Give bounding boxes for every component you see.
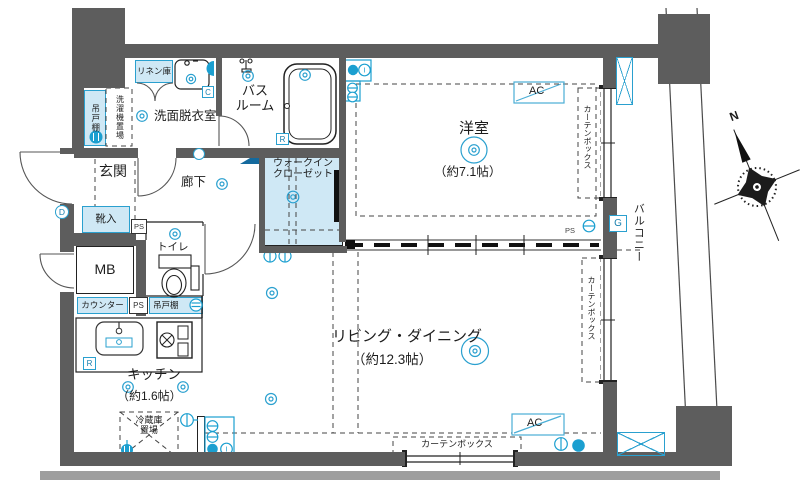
shower-icon	[240, 59, 252, 72]
wall	[74, 148, 138, 158]
wall	[603, 382, 617, 452]
outlet-pair-bottom-right	[555, 438, 585, 452]
wall	[74, 233, 136, 246]
c-badge: C	[202, 86, 214, 98]
window-living	[599, 255, 617, 384]
r-badge-bath: R	[276, 133, 289, 145]
window-west-room	[599, 85, 617, 201]
outlet-cluster-west-room	[345, 60, 371, 102]
room-label-hanging-cupboard-washroom: 吊戸棚	[84, 92, 106, 144]
wall	[60, 148, 74, 154]
r-badge-kitchen: R	[83, 357, 96, 370]
bathroom-line2: ルーム	[236, 99, 275, 114]
ps-label-west-room: PS	[565, 227, 575, 235]
wic-line1: ウォークイン	[273, 158, 333, 169]
room-size-living: （約12.3帖）	[352, 352, 432, 367]
room-label-entrance: 玄関	[99, 164, 127, 180]
room-label-balcony: バルコニー	[632, 203, 644, 263]
room-label-hanging-cupboard-kitchen: 吊戸棚	[153, 301, 179, 311]
wall	[259, 246, 347, 253]
room-size-kitchen: （約1.6帖）	[117, 390, 182, 403]
floor-plan: I I 洗面脱衣室 バス ルーム リネン庫 吊戸棚 洗濯機置場 玄関 靴入 MB…	[0, 0, 800, 486]
ps-badge-entrance: PS	[131, 219, 147, 234]
room-label-shoe-box: 靴入	[82, 206, 130, 233]
room-label-bathroom: バス ルーム	[232, 84, 278, 113]
range-hood-icon	[190, 299, 202, 311]
intercom-icon	[193, 148, 205, 160]
wall	[658, 14, 710, 84]
room-label-linen: リネン庫	[135, 60, 173, 83]
wall	[125, 44, 658, 58]
curtain-box-label-west: カーテンボックス	[582, 105, 591, 169]
room-label-hallway: 廊下	[181, 175, 206, 189]
wall	[72, 86, 84, 150]
wall	[603, 58, 617, 88]
wall	[60, 292, 74, 452]
ac-label-living: AC	[527, 417, 542, 429]
room-label-western: 洋室	[459, 121, 489, 138]
room-label-washroom: 洗面脱衣室	[154, 109, 217, 123]
ac-boxes	[512, 82, 564, 435]
room-label-meter-box: MB	[76, 246, 134, 294]
room-label-kitchen: キッチン	[127, 367, 181, 382]
hatch-icon-bottom	[617, 432, 665, 456]
wall	[60, 452, 405, 466]
room-size-western: （約7.1帖）	[434, 165, 501, 179]
room-label-washer-space: 洗濯機置場	[106, 90, 132, 144]
g-badge-balcony: G	[609, 215, 627, 232]
outlet-partition-end	[583, 220, 595, 232]
wall	[676, 406, 732, 466]
ps-badge-kitchen: PS	[129, 297, 148, 314]
fridge-line2: 置場	[140, 425, 158, 435]
sliding-partition	[334, 170, 601, 255]
wall	[72, 8, 125, 88]
room-label-counter: カウンター	[77, 297, 128, 314]
toilet-fixture	[159, 255, 199, 297]
wic-line2: クローゼット	[273, 169, 333, 180]
hatch-icon-top	[616, 57, 633, 105]
d-badge-entrance: D	[55, 205, 69, 219]
ac-label-west: AC	[529, 85, 544, 97]
compass-icon	[691, 112, 800, 258]
window-bottom	[402, 450, 518, 467]
room-label-toilet: トイレ	[157, 242, 189, 254]
curtain-box-label-bottom: カーテンボックス	[395, 439, 519, 449]
curtain-box-label-living: カーテンボックス	[586, 276, 595, 340]
wall	[339, 58, 346, 242]
fridge-line1: 冷蔵庫	[135, 415, 162, 425]
internet-outlet-label: I	[363, 66, 365, 75]
wall	[216, 58, 222, 116]
bathroom-line1: バス	[242, 84, 268, 99]
room-label-living: リビング・ダイニング	[332, 329, 482, 346]
room-label-fridge: 冷蔵庫 置場	[120, 415, 178, 435]
room-label-wic: ウォークイン クローゼット	[264, 158, 342, 180]
